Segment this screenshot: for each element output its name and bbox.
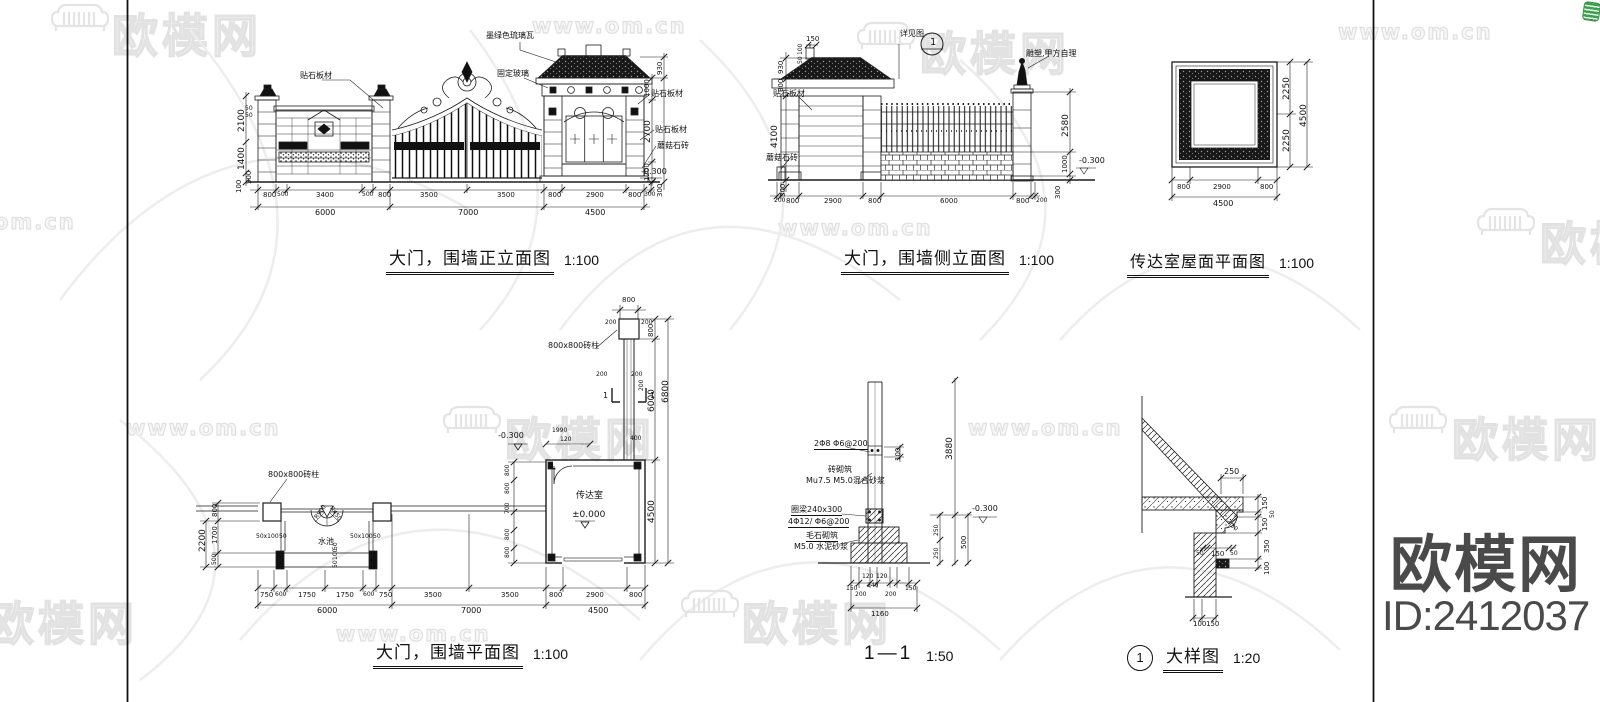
dim-label: 7000 [458, 209, 478, 217]
title-scale: 1:100 [1279, 255, 1314, 271]
dim-label: 800 [1177, 184, 1190, 191]
dim-label: 1750 [336, 592, 354, 599]
dim-label: 800 [548, 192, 561, 199]
title-plan: 大门，围墙平面图 1:100 [373, 638, 568, 669]
dim-label: 300 [1055, 186, 1062, 199]
dim-label: 100 [333, 549, 339, 560]
dim-label: 4Φ12/ Φ6@200 [788, 518, 849, 528]
dim-label: 2700 [644, 120, 653, 143]
dim-label: M5.0 水泥砂浆 [794, 543, 848, 551]
dim-label: 3500 [501, 592, 519, 599]
dim-label: 4500 [648, 500, 657, 523]
dim-label: www.om.cn [532, 14, 687, 38]
dim-label: 4500 [1300, 104, 1309, 127]
dim-label: 50 [798, 56, 804, 64]
dim-label: 800 [778, 79, 785, 92]
dim-label: 800 [505, 529, 511, 540]
dim-label: 传达室 [576, 492, 603, 501]
dim-label: om.cn [0, 210, 76, 234]
dim-label: 250 [934, 548, 940, 559]
dim-label: 3500 [497, 192, 515, 199]
dim-label: 3500 [424, 592, 442, 599]
dim-label: 50 [279, 534, 287, 540]
dim-label: 120 [862, 574, 873, 580]
dim-label: 800 [868, 198, 881, 205]
dim-label: Mu7.5 M5.0混合砂浆 [806, 477, 885, 485]
title-text: 大样图 [1163, 642, 1223, 673]
detail-drawing [1142, 396, 1262, 622]
dim-label: 50 [1230, 551, 1238, 557]
dim-label: 800 [1016, 198, 1029, 205]
dim-label: www.om.cn [1338, 20, 1493, 44]
dim-label: -0.300 [1079, 157, 1105, 165]
dim-label: 2100 [238, 109, 247, 132]
dim-label: 150 [1262, 497, 1269, 510]
dim-label: 2900 [824, 198, 842, 205]
corner-green-icon [1582, 1, 1600, 22]
title-front-elevation: 大门，围墙正立面图 1:100 [386, 244, 599, 275]
dim-label: 2580 [1062, 114, 1071, 137]
dim-label: 50 [333, 560, 339, 568]
dim-label: 固定玻璃 [497, 70, 529, 78]
dim-label: 930 [657, 62, 664, 75]
dim-label: 欧模网 [1540, 208, 1600, 274]
dim-label: 2250 [1283, 129, 1292, 152]
dim-label: 蘑菇石砖 [766, 154, 798, 162]
dim-label: 2250 [1283, 77, 1292, 100]
dim-label: 1000 [644, 79, 651, 97]
dim-label: 100 [236, 180, 243, 193]
dim-label: 800 [212, 504, 219, 517]
dim-label: 800 [1260, 184, 1273, 191]
dim-label: 350 [1264, 540, 1271, 553]
dim-label: 800 [505, 465, 511, 476]
title-scale: 1:20 [1233, 650, 1260, 666]
dim-label: 200 [774, 198, 785, 204]
dim-label: 800 [786, 198, 799, 205]
dim-label: 500 [362, 192, 373, 198]
dim-label: 6000 [648, 389, 657, 412]
dim-label: 1400 [238, 147, 247, 170]
dim-label: 6000 [940, 198, 958, 205]
dim-label: 120 [876, 574, 887, 580]
dim-label: 详见图 [900, 30, 924, 38]
dim-label: 500 [212, 554, 218, 565]
dim-label: 2900 [586, 592, 604, 599]
dim-label: 2Φ8 Φ6@200 [814, 440, 868, 450]
dim-label: 100 [798, 44, 804, 55]
dim-label: www.om.cn [778, 216, 933, 240]
dim-label: 800x800砖柱 [268, 471, 319, 479]
dim-label: 50 [373, 534, 381, 540]
section-drawing [818, 377, 997, 612]
title-roof-plan: 传达室屋面平面图 1:100 [1127, 248, 1314, 278]
title-text: 大门，围墙侧立面图 [841, 244, 1009, 275]
dim-label: 930 [778, 61, 785, 74]
dim-label: 600 [275, 592, 286, 598]
dim-label: 800 [629, 592, 642, 599]
title-text: 大门，围墙平面图 [373, 638, 523, 669]
dim-label: 150 [905, 586, 916, 592]
dim-label: 800 [505, 547, 511, 558]
dim-label: 800 [505, 483, 511, 494]
title-side-elevation: 大门，围墙侧立面图 1:100 [841, 244, 1054, 275]
watermark-arcs [60, 30, 1360, 680]
dim-label: 50x100 [350, 534, 373, 540]
dim-label: 200 [885, 592, 896, 598]
dim-label: 250 [934, 525, 940, 536]
dim-label: 800 [378, 192, 391, 199]
dim-label: 500 [246, 171, 253, 184]
dim-label: 150 [806, 36, 819, 43]
dim-label: 贴石板材 [655, 126, 687, 134]
dim-ticks-detail [1190, 475, 1261, 621]
dim-label: 1 [603, 392, 608, 400]
title-text: 大门，围墙正立面图 [386, 244, 554, 275]
dim-label: 欧模网 [112, 0, 262, 66]
dim-label: 200 [1036, 198, 1047, 204]
site-id-watermark: ID:2412037 [1382, 592, 1589, 640]
detail-bubble-number: 1 [1127, 645, 1153, 671]
dim-label: 300 [644, 192, 655, 198]
dim-label: R450 [328, 506, 342, 522]
dim-label: 2900 [1213, 184, 1231, 191]
dim-label: 1000 [1062, 155, 1069, 173]
title-text: 传达室屋面平面图 [1127, 248, 1269, 278]
dim-label: 200 [631, 372, 642, 378]
dim-label: R900 [314, 504, 328, 520]
dim-label: 50 [1196, 551, 1204, 557]
dim-label: 2200 [199, 529, 208, 552]
dim-label: 2900 [586, 192, 604, 199]
dim-label: 100 [1193, 621, 1206, 628]
title-scale: 1:100 [533, 646, 568, 662]
dim-label: 贴石板材 [300, 72, 332, 80]
dim-label: -0.300 [498, 432, 524, 440]
dim-label: 150 [1206, 621, 1219, 628]
dim-label: 250 [1224, 468, 1239, 476]
dim-label: 蘑菇石砖 [657, 142, 689, 150]
dim-label: 6800 [662, 380, 671, 403]
title-scale: 1:50 [926, 648, 953, 664]
title-scale: 1:100 [1019, 252, 1054, 268]
dim-label: 4100 [771, 125, 780, 148]
dim-label: 30 [1229, 523, 1239, 533]
dim-label: 150 [1211, 551, 1224, 558]
dim-label: 3880 [946, 437, 955, 460]
dim-label: 1990 [552, 428, 567, 434]
dim-label: 700 [505, 503, 511, 514]
dim-label: 100 [1264, 562, 1271, 575]
dim-label: 100 [895, 448, 902, 461]
dim-label: -0.300 [972, 505, 998, 513]
dim-label: 1700 [212, 526, 219, 544]
dim-label: 毛石砌筑 [806, 532, 838, 542]
dim-label: 200 [855, 592, 866, 598]
dim-label: www.om.cn [126, 416, 281, 440]
dim-label: 贴石板材 [651, 90, 683, 98]
dim-label: 120 [560, 437, 571, 443]
dim-label: 750 [379, 592, 392, 599]
dim-label: www.om.cn [968, 416, 1123, 440]
dim-label: 150 [1262, 518, 1269, 531]
dim-label: 300 [780, 184, 787, 197]
dim-label: 800 [648, 324, 655, 337]
dim-label: 1 [930, 38, 936, 48]
dim-label: 墨绿色琉璃瓦 [486, 32, 534, 40]
dim-label: 欧模网 [1452, 404, 1600, 470]
front-elevation-drawing [243, 42, 668, 210]
dim-label: 500 [277, 192, 288, 198]
dim-label: 500 [961, 536, 968, 549]
dim-label: 欧模网 [0, 588, 138, 654]
title-text: 1—1 [861, 643, 916, 668]
dim-label: 300 [657, 184, 664, 197]
cad-sheet: www.om.cnwww.om.cnwww.om.cnom.cnwww.om.c… [0, 0, 1600, 702]
dim-label: 800 [263, 192, 276, 199]
dim-label: 雕塑,甲方自理 [1026, 50, 1077, 58]
title-detail: 1 大样图 1:20 [1127, 642, 1260, 673]
dim-label: 1200 [644, 163, 651, 181]
dim-label: 6000 [315, 209, 335, 217]
dim-label: 7000 [461, 607, 481, 615]
dim-label: 圈梁240x300 [791, 506, 842, 516]
dim-label: 50x100 [256, 534, 279, 540]
dim-label: 3400 [316, 192, 334, 199]
dim-label: 800 [549, 592, 562, 599]
site-brand-watermark: 欧模网 [1390, 514, 1582, 604]
dim-label: 4500 [1213, 200, 1233, 208]
dim-label: 砖砌筑 [828, 466, 852, 474]
dim-label: 50 [1270, 510, 1276, 518]
dim-label: 200 [605, 320, 616, 326]
dim-label: ±0.000 [572, 511, 605, 520]
title-section: 1—1 1:50 [861, 643, 953, 668]
dim-label: 4500 [588, 607, 608, 615]
dim-label: 200 [596, 372, 607, 378]
dim-label: 240 [867, 583, 878, 589]
dim-label: 6000 [317, 607, 337, 615]
dim-label: 600 [363, 592, 374, 598]
dim-label: 4500 [585, 209, 605, 217]
dim-label: 400 [630, 436, 641, 442]
dim-label: 1160 [871, 611, 889, 618]
dim-label: 800x800砖柱 [548, 342, 599, 350]
dim-label: 750 [260, 592, 273, 599]
dim-label: 3500 [420, 192, 438, 199]
dim-label: 800 [622, 297, 635, 304]
dim-label: 800 [628, 192, 641, 199]
dim-label: 1750 [298, 592, 316, 599]
title-scale: 1:100 [564, 252, 599, 268]
dim-label: 200 [639, 380, 645, 391]
